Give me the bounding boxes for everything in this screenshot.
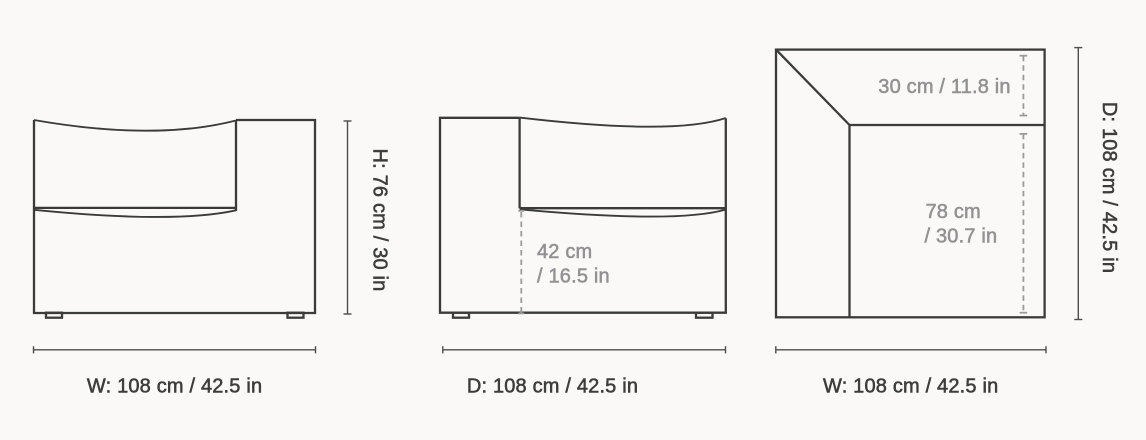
svg-text:W: 108 cm / 42.5 in: W: 108 cm / 42.5 in xyxy=(823,376,998,398)
svg-text:D: 108 cm / 42.5 in: D: 108 cm / 42.5 in xyxy=(467,376,638,398)
svg-text:42 cm: 42 cm xyxy=(537,241,592,263)
svg-text:/ 30.7 in: / 30.7 in xyxy=(925,226,998,248)
svg-text:/ 16.5 in: / 16.5 in xyxy=(537,266,610,288)
svg-text:78 cm: 78 cm xyxy=(926,201,981,223)
svg-text:H: 76 cm / 30 in: H: 76 cm / 30 in xyxy=(368,149,390,292)
svg-text:W: 108 cm / 42.5 in: W: 108 cm / 42.5 in xyxy=(87,376,262,398)
svg-text:D: 108 cm / 42.5 in: D: 108 cm / 42.5 in xyxy=(1098,102,1120,273)
svg-text:30 cm / 11.8 in: 30 cm / 11.8 in xyxy=(878,76,1010,98)
